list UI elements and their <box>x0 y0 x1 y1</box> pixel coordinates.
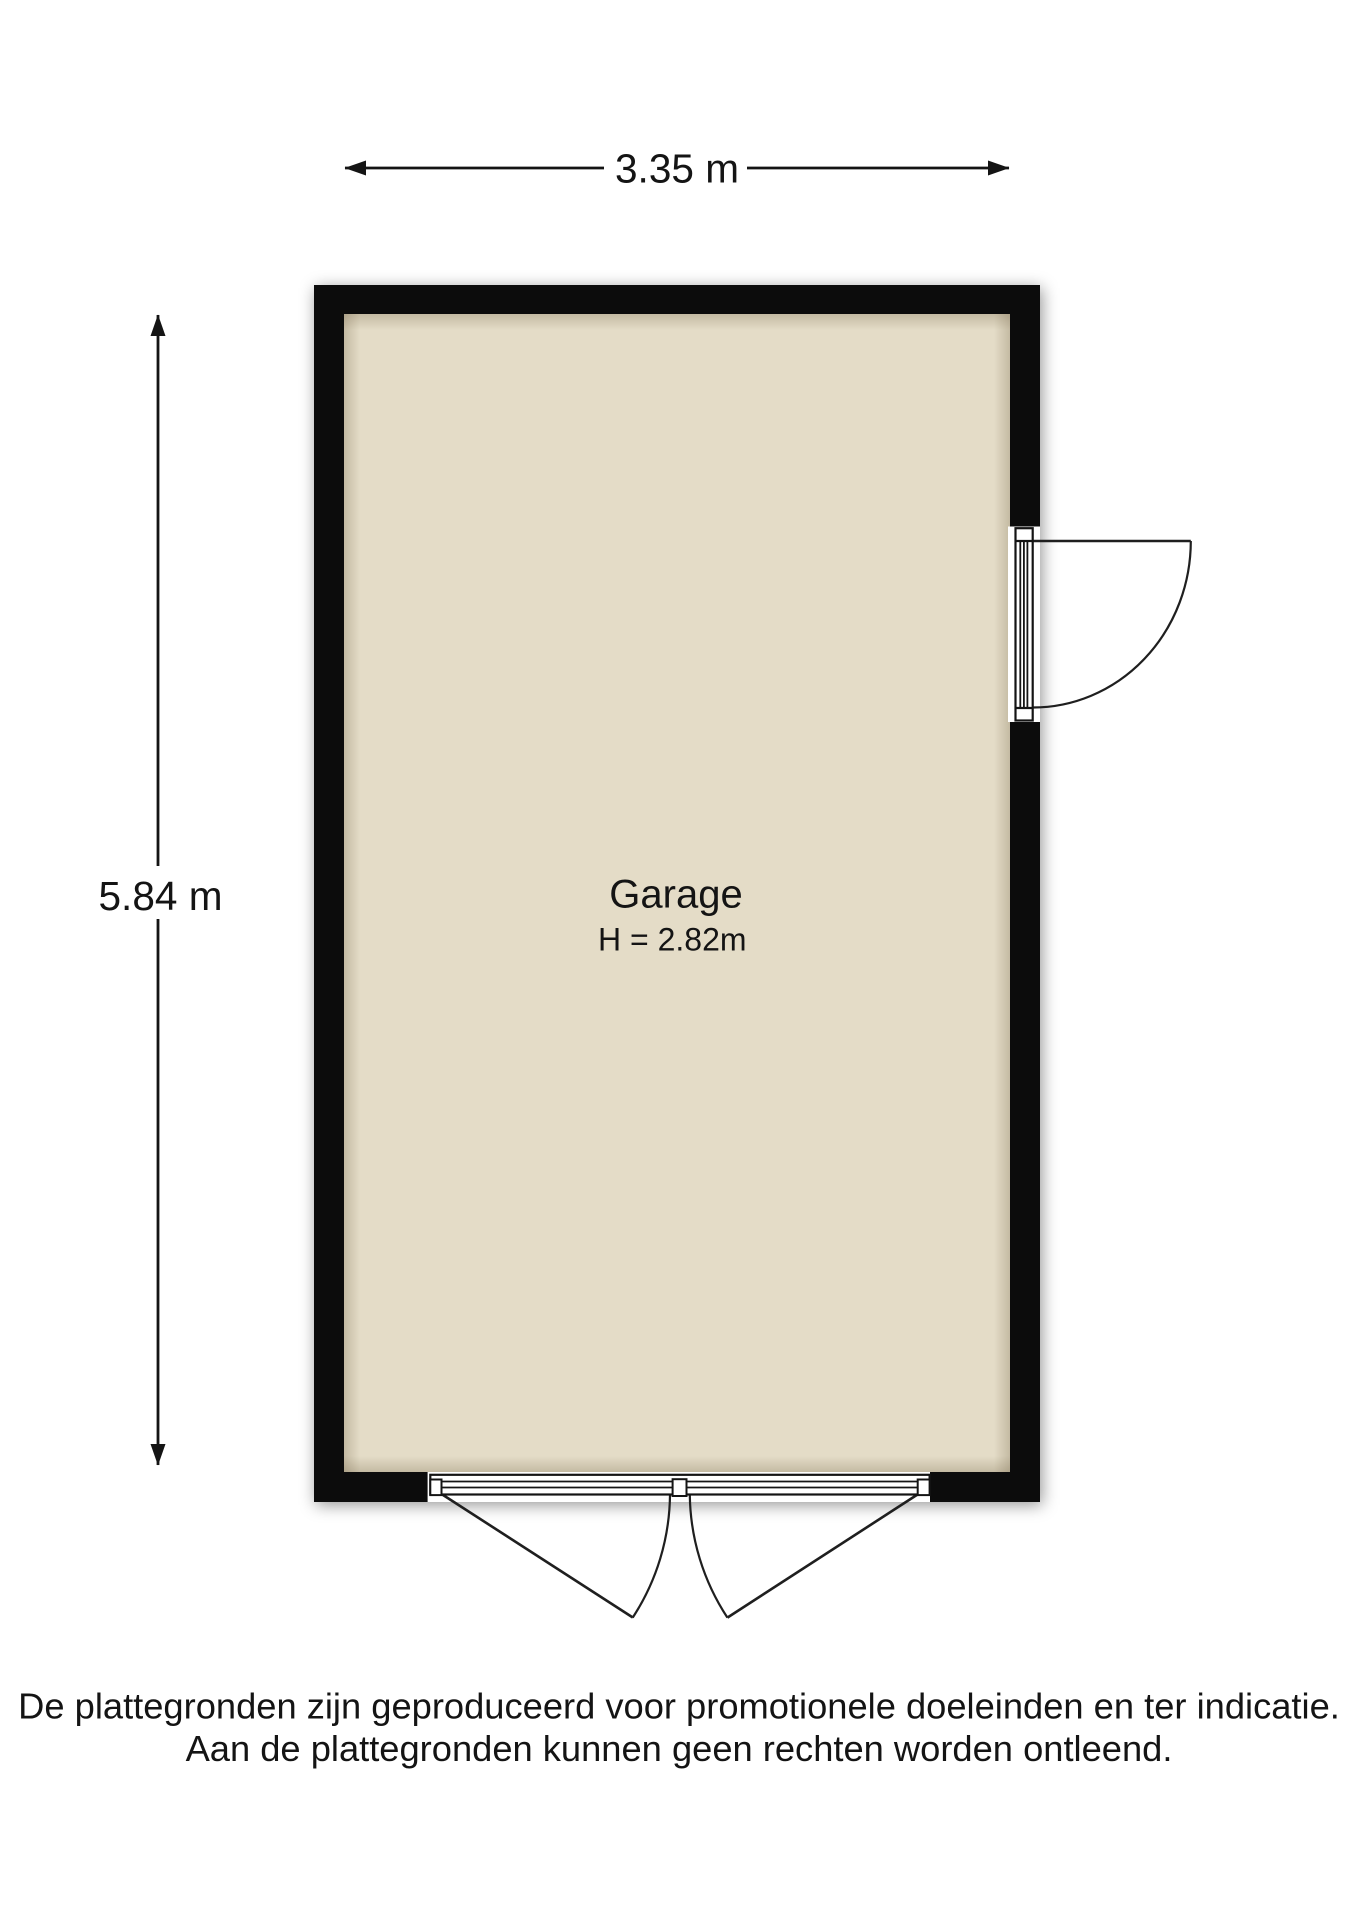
svg-text:5.84 m: 5.84 m <box>99 873 223 919</box>
svg-text:Garage: Garage <box>609 873 742 917</box>
svg-text:Aan de plattegronden kunnen ge: Aan de plattegronden kunnen geen rechten… <box>186 1728 1173 1769</box>
svg-text:3.35 m: 3.35 m <box>615 146 739 192</box>
svg-text:H = 2.82m: H = 2.82m <box>598 921 747 957</box>
svg-text:De plattegronden zijn geproduc: De plattegronden zijn geproduceerd voor … <box>18 1686 1340 1727</box>
